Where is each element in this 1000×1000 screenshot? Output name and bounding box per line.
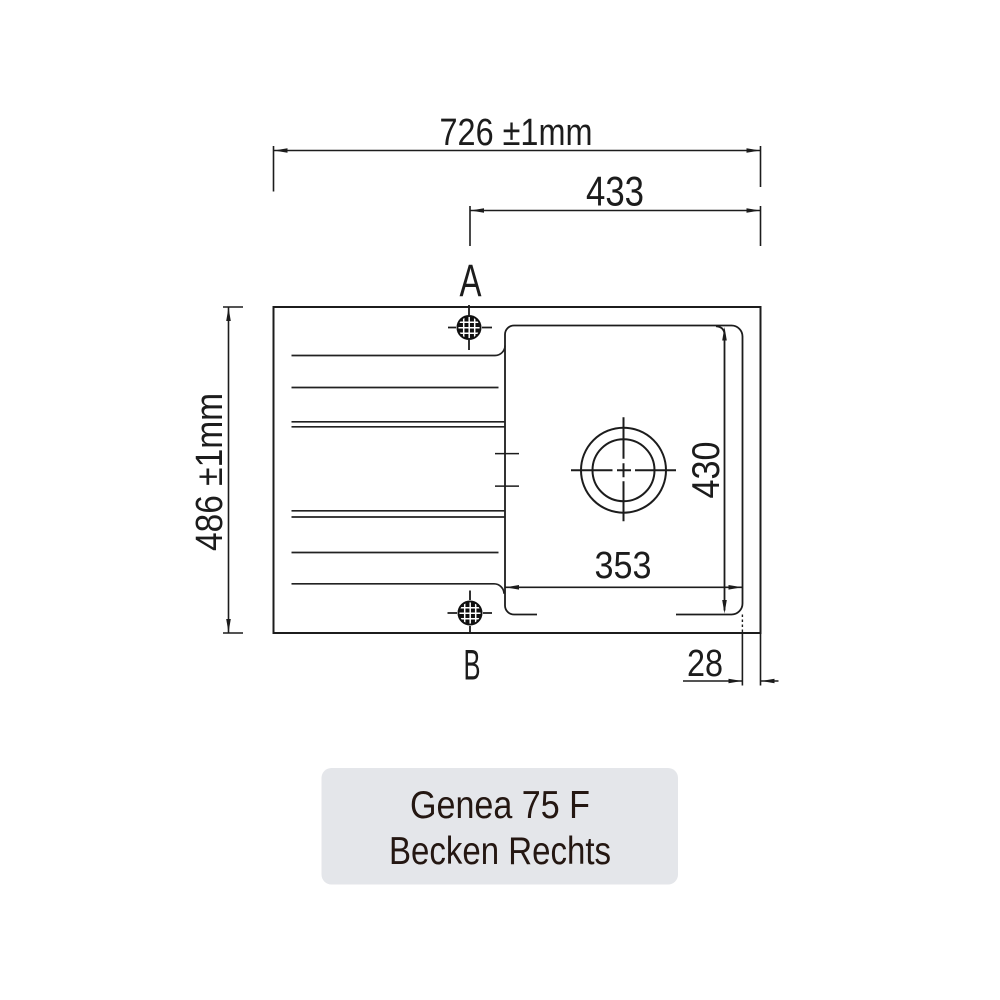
- svg-text:Genea 75 F: Genea 75 F: [410, 784, 590, 827]
- svg-text:Becken Rechts: Becken Rechts: [389, 830, 611, 873]
- svg-text:353: 353: [595, 545, 652, 587]
- svg-text:726 ±1mm: 726 ±1mm: [440, 112, 593, 154]
- svg-text:433: 433: [586, 168, 644, 215]
- svg-text:B: B: [464, 642, 481, 690]
- svg-text:486 ±1mm: 486 ±1mm: [189, 393, 231, 551]
- svg-text:28: 28: [687, 643, 723, 685]
- svg-text:430: 430: [685, 442, 728, 499]
- svg-text:A: A: [460, 255, 482, 306]
